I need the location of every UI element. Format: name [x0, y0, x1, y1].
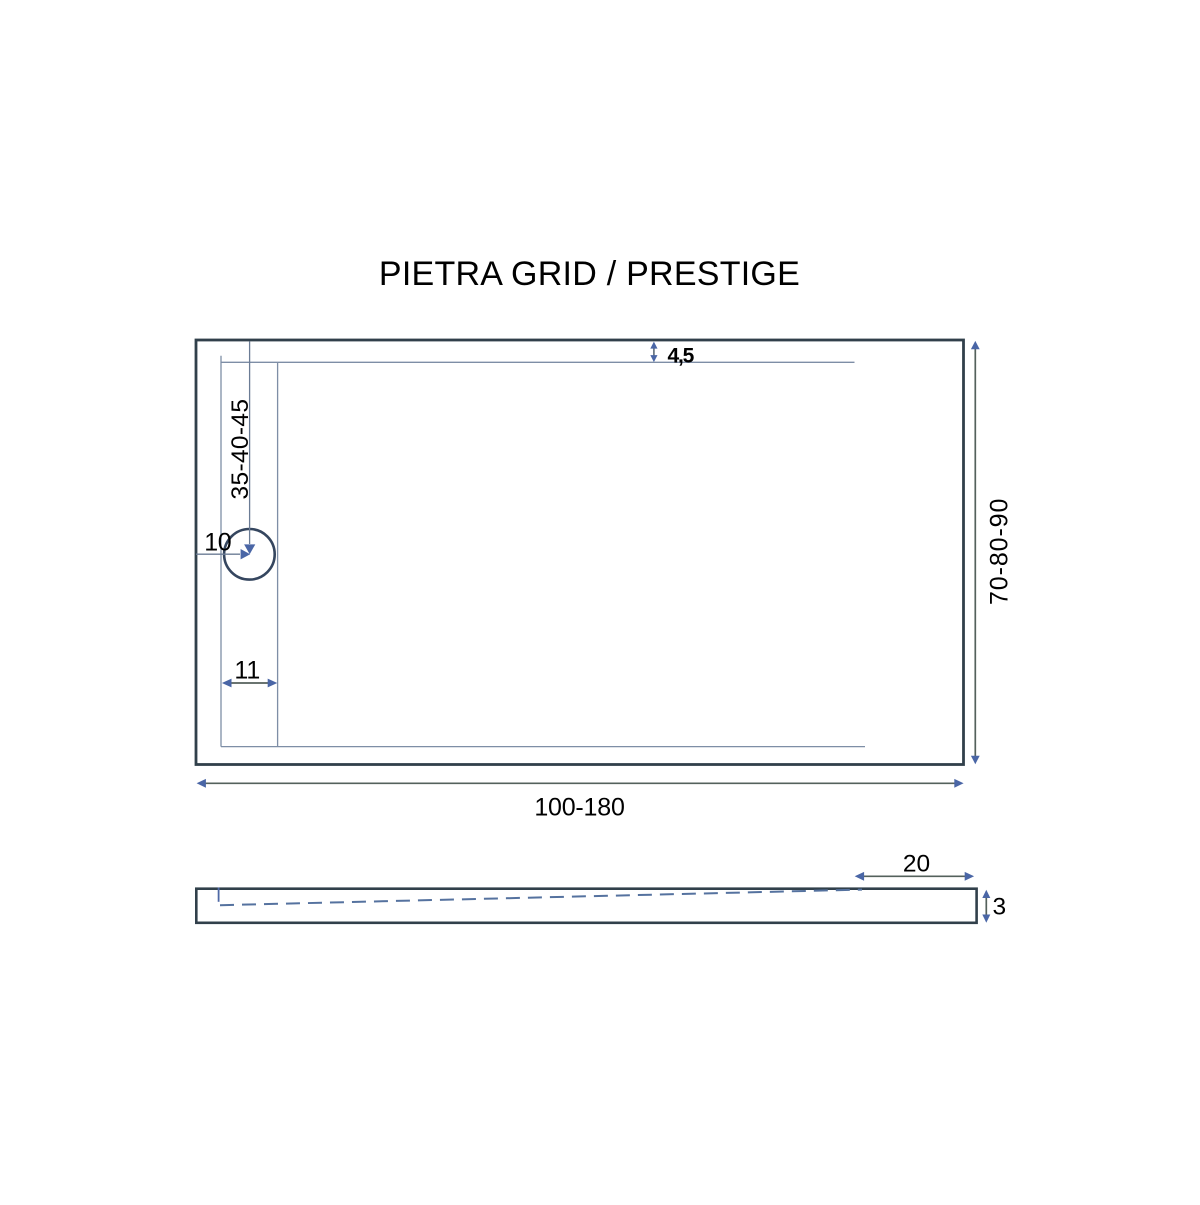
svg-text:PIETRA GRID / PRESTIGE: PIETRA GRID / PRESTIGE — [379, 255, 800, 293]
svg-text:11: 11 — [234, 657, 260, 685]
svg-text:20: 20 — [903, 850, 930, 877]
svg-text:100-180: 100-180 — [534, 794, 624, 822]
svg-text:70-80-90: 70-80-90 — [986, 498, 1014, 605]
svg-text:10: 10 — [204, 529, 231, 557]
svg-text:4,5: 4,5 — [668, 344, 695, 367]
svg-text:35-40-45: 35-40-45 — [227, 399, 254, 500]
svg-text:3: 3 — [993, 894, 1007, 921]
